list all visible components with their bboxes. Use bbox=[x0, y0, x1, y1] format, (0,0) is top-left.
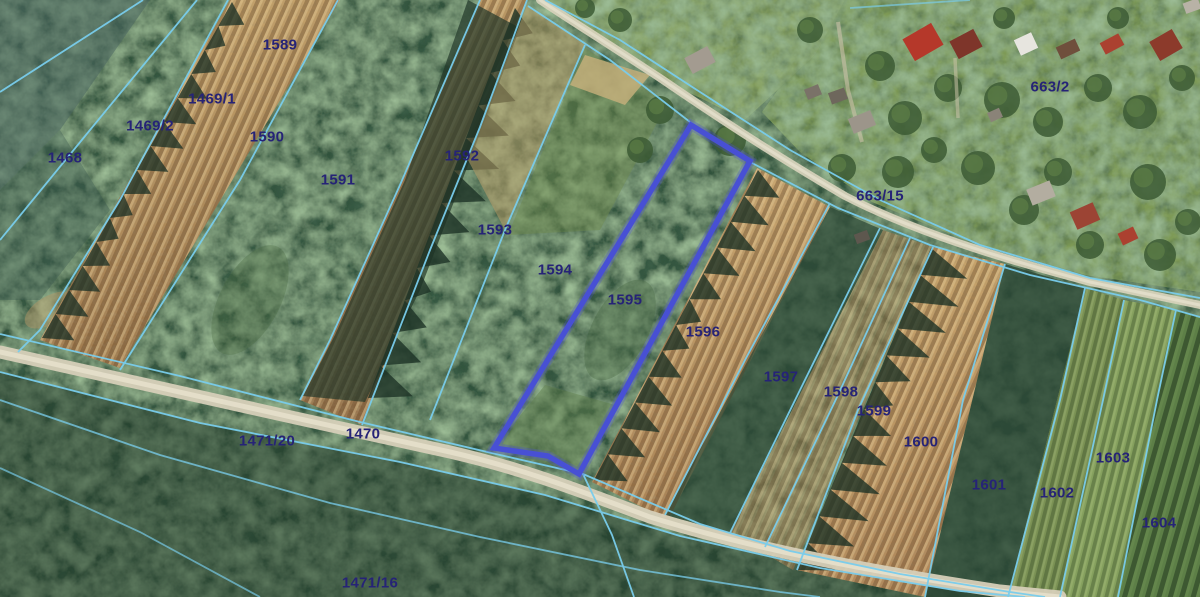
map-canvas[interactable] bbox=[0, 0, 1200, 597]
map-viewport[interactable]: 15891469/11469/2146815901591159215931594… bbox=[0, 0, 1200, 597]
